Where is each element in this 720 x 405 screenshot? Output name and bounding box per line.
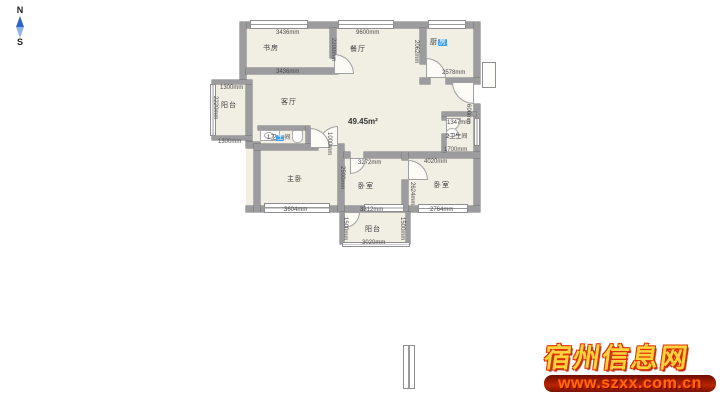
dim-master-side: 2500mm: [339, 166, 345, 189]
wall: [420, 78, 430, 84]
room-label-bedroom-right: 卧室: [434, 182, 450, 189]
dim-master-bottom: 3604mm: [284, 207, 307, 213]
dim-study-top: 3436mm: [276, 30, 299, 36]
wall: [402, 152, 408, 160]
wall: [402, 152, 480, 158]
compass-north-label: N: [10, 6, 30, 15]
window-fragment: [403, 345, 415, 389]
room-label-study: 书房: [263, 45, 279, 52]
wall: [254, 142, 260, 212]
room-label-bath1: 1卫生间: [267, 135, 290, 141]
wall: [474, 22, 480, 82]
dim-bath2-bottom: 1700mm: [444, 147, 467, 153]
window: [338, 20, 394, 29]
wall: [406, 212, 410, 244]
room-label-bath1-text: 间: [284, 135, 290, 141]
dim-balcony-left-side: 2220mm: [212, 96, 218, 119]
room-label-bath2: 2卫生间: [446, 134, 467, 140]
room-label-kitchen: 厨房: [430, 39, 447, 46]
dim-study-bottom: 3436mm: [276, 69, 299, 75]
room-label-kitchen-highlight: 房: [438, 39, 447, 46]
dim-bedroom-right-top: 4020mm: [424, 159, 447, 165]
window: [428, 20, 466, 29]
ac-platform: [482, 62, 496, 88]
window: [474, 118, 480, 146]
room-label-dining: 餐厅: [350, 46, 366, 53]
window: [250, 20, 308, 29]
room-label-master: 主卧: [287, 176, 303, 183]
dim-balcony-bottom-right: 1500mm: [399, 217, 405, 240]
room-label-kitchen-text: 厨: [430, 39, 438, 46]
floorplan-screen: N S: [0, 0, 720, 405]
room-label-bedroom-mid: 卧室: [358, 183, 374, 190]
dim-bedroom-right-side: 2624mm: [409, 182, 415, 205]
compass: N S: [10, 6, 30, 52]
watermark: 宿州信息网 www.szxx.com.cn: [544, 344, 720, 400]
dim-balcony-left-bottom: 1300mm: [218, 139, 241, 145]
dim-door-width: 1000mm: [326, 132, 332, 155]
toilet: [292, 130, 303, 143]
watermark-site-name: 宿州信息网: [542, 344, 720, 374]
room-label-balcony-bottom: 阳台: [365, 226, 381, 233]
dim-balcony-left-top: 1300mm: [220, 85, 243, 91]
dim-kitchen-left: 2062mm: [413, 40, 419, 63]
compass-needle-icon: [16, 16, 24, 27]
dim-top-width: 9600mm: [356, 30, 379, 36]
wall: [254, 144, 318, 150]
room-label-living: 客厅: [281, 99, 297, 106]
compass-south-label: S: [10, 38, 30, 47]
dim-balcony-bottom-bottom: 3020mm: [362, 240, 385, 246]
floor-balcony-left: [214, 84, 248, 136]
watermark-site-url: www.szxx.com.cn: [544, 375, 716, 392]
dim-balcony-bottom-top: 3312mm: [360, 207, 383, 213]
dim-bath2-side: 600mm: [465, 104, 471, 124]
wall: [212, 80, 252, 84]
total-area-label: 49.45m²: [348, 117, 378, 126]
dim-study-right: 2200mm: [330, 38, 336, 61]
dim-bedroom-mid-top: 3272mm: [358, 160, 381, 166]
dim-balcony-bottom-left: 1500mm: [342, 217, 348, 240]
room-label-bath1-text: 1卫: [267, 135, 276, 141]
wall: [240, 22, 246, 84]
wall: [246, 82, 252, 144]
dim-kitchen-bottom: 2578mm: [442, 70, 465, 76]
wall: [364, 152, 404, 158]
room-label-balcony-left: 阳台: [221, 102, 237, 109]
dim-bedroom-right-bottom: 2764mm: [430, 207, 453, 213]
